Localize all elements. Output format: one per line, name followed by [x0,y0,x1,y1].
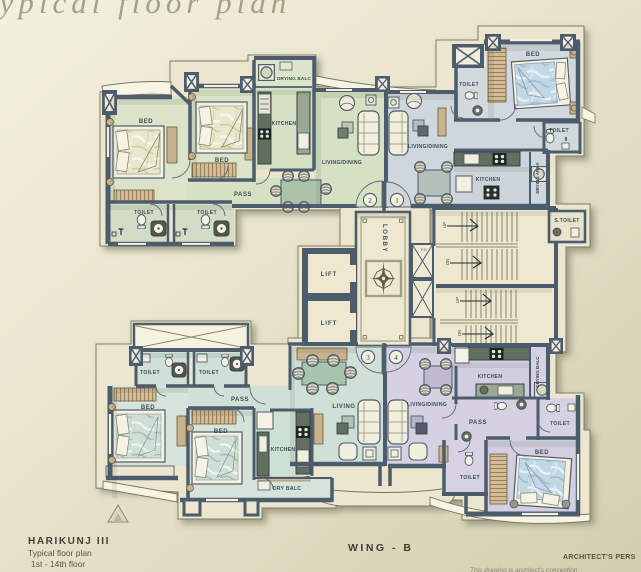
svg-text:TOILET: TOILET [140,370,160,376]
svg-text:typical floor plan: typical floor plan [0,0,291,20]
svg-text:F.D: F.D [421,248,427,252]
svg-text:HARIKUNJ III: HARIKUNJ III [28,536,110,547]
svg-text:KITCHEN: KITCHEN [478,374,503,380]
svg-text:LOBBY: LOBBY [381,224,388,253]
svg-text:TOILET: TOILET [550,421,570,427]
svg-text:DRYING BALC: DRYING BALC [277,76,311,81]
svg-text:LIFT: LIFT [321,321,338,327]
svg-text:TOILET: TOILET [549,128,569,134]
svg-text:DN: DN [457,330,462,337]
svg-text:UP: UP [442,222,447,228]
svg-text:BED: BED [214,429,228,435]
svg-text:TOILET: TOILET [197,210,217,216]
svg-text:LIVING/DINING: LIVING/DINING [407,402,447,408]
svg-text:BED: BED [139,119,153,125]
svg-text:WING - B: WING - B [348,542,414,554]
svg-text:PASS: PASS [469,420,487,426]
svg-text:PASS: PASS [231,397,249,403]
svg-text:TOILET: TOILET [459,82,479,88]
svg-text:LIVING/DINING: LIVING/DINING [408,144,448,150]
svg-text:BED: BED [535,450,549,456]
svg-text:BED: BED [215,158,229,164]
svg-text:1st - 14th floor: 1st - 14th floor [31,559,86,569]
svg-text:PASS: PASS [234,192,252,198]
svg-text:This drawing is architect's co: This drawing is architect's conception [470,567,578,572]
svg-text:LIFT: LIFT [321,272,338,278]
svg-text:4: 4 [394,353,398,362]
svg-text:DRYING BALC: DRYING BALC [535,356,540,388]
svg-text:TOILET: TOILET [199,370,219,376]
svg-text:3: 3 [366,353,370,362]
svg-text:DRY BALC: DRY BALC [273,486,301,492]
svg-text:TOILET: TOILET [134,210,154,216]
svg-text:KITCHEN: KITCHEN [272,121,297,127]
svg-text:Typical floor plan: Typical floor plan [28,548,92,558]
svg-text:UP: UP [455,297,460,303]
svg-text:2: 2 [368,196,372,205]
svg-text:ARCHITECT'S PERS: ARCHITECT'S PERS [563,554,636,561]
svg-text:BED: BED [141,405,155,411]
svg-text:TOILET: TOILET [460,475,480,481]
svg-text:BED: BED [526,52,540,58]
svg-text:S.TOILET: S.TOILET [554,218,580,224]
svg-text:DN: DN [445,259,450,266]
svg-text:1: 1 [395,196,399,205]
svg-text:LIVING: LIVING [332,404,355,410]
svg-text:LIVING/DINING: LIVING/DINING [322,160,362,166]
svg-text:DRYING AREA: DRYING AREA [535,162,540,194]
svg-text:KITCHEN: KITCHEN [476,177,501,183]
